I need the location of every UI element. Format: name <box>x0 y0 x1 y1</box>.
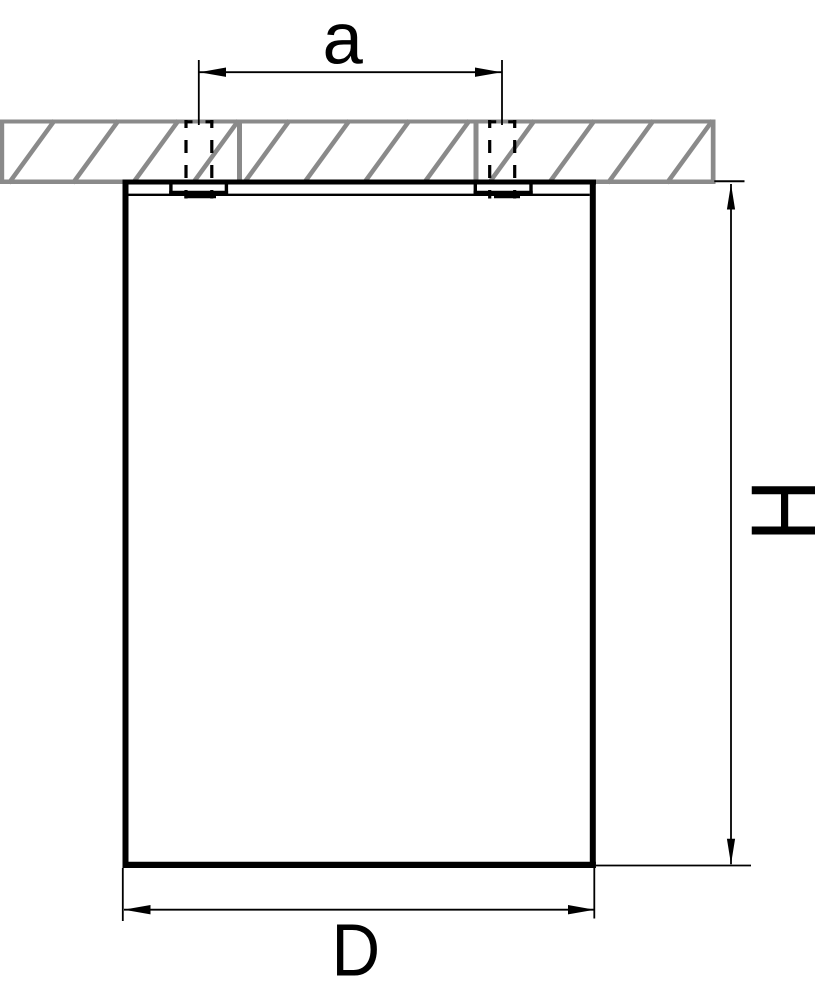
svg-text:a: a <box>323 0 364 79</box>
svg-text:D: D <box>331 909 380 992</box>
svg-text:H: H <box>732 479 816 541</box>
